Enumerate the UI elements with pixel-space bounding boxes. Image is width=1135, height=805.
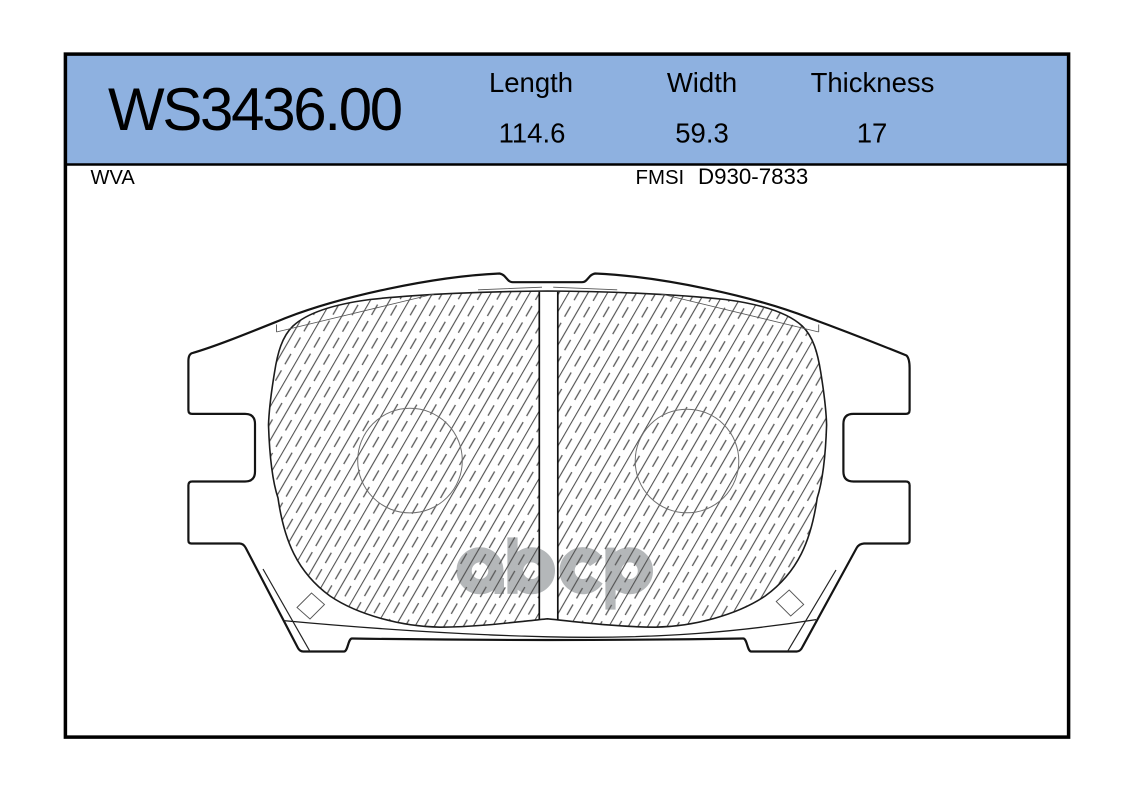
svg-text:114.6: 114.6 <box>499 118 566 149</box>
svg-text:Width: Width <box>667 67 737 98</box>
svg-text:WVA: WVA <box>91 167 136 189</box>
svg-text:D930-7833: D930-7833 <box>698 164 808 189</box>
svg-text:Length: Length <box>489 67 573 98</box>
svg-text:Thickness: Thickness <box>811 67 935 98</box>
svg-text:FMSI: FMSI <box>636 167 685 189</box>
svg-text:59.3: 59.3 <box>675 118 729 149</box>
svg-text:17: 17 <box>857 118 888 149</box>
svg-text:WS3436.00: WS3436.00 <box>108 76 402 143</box>
